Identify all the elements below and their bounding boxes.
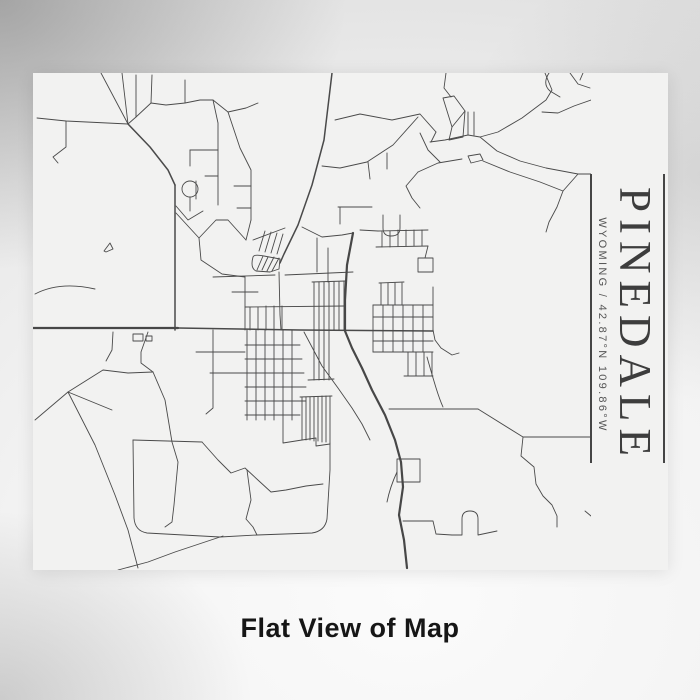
road — [35, 286, 95, 294]
road — [580, 73, 583, 80]
title-rule-right — [663, 174, 665, 463]
road — [433, 330, 459, 355]
road — [418, 159, 462, 172]
title-rule-left — [590, 174, 592, 463]
road — [176, 213, 246, 240]
image-caption: Flat View of Map — [0, 613, 700, 644]
road — [68, 392, 138, 568]
road — [444, 73, 451, 97]
road — [478, 409, 523, 437]
road — [133, 440, 202, 442]
road — [546, 73, 560, 97]
road — [122, 73, 128, 124]
road — [178, 328, 433, 331]
road — [427, 357, 443, 407]
road — [35, 370, 153, 420]
street-map-graphic — [33, 73, 668, 570]
road — [259, 231, 265, 251]
road — [521, 437, 557, 527]
road — [443, 96, 465, 127]
road — [376, 246, 428, 247]
road — [257, 256, 263, 270]
road — [245, 306, 345, 307]
road — [53, 121, 66, 163]
road — [420, 133, 440, 162]
road — [101, 73, 128, 124]
road — [483, 161, 563, 191]
road — [68, 392, 112, 410]
map-poster: PINEDALE WYOMING / 42.87°N 109.86°W — [33, 73, 668, 570]
road — [546, 174, 578, 232]
road — [379, 282, 404, 283]
road — [360, 230, 378, 231]
road — [542, 100, 591, 113]
road — [418, 258, 433, 272]
road — [133, 440, 330, 537]
road — [302, 227, 353, 237]
road — [452, 511, 497, 535]
road — [271, 233, 277, 253]
road — [136, 100, 258, 117]
photo-background: PINEDALE WYOMING / 42.87°N 109.86°W Flat… — [0, 0, 700, 700]
road — [151, 75, 152, 103]
title-block: PINEDALE WYOMING / 42.87°N 109.86°W — [594, 175, 658, 475]
road — [106, 332, 113, 361]
road — [387, 472, 397, 502]
road — [133, 334, 143, 341]
road — [406, 172, 420, 208]
road — [202, 442, 323, 492]
road — [300, 396, 332, 397]
roads-minor — [35, 73, 591, 570]
roads-medium — [128, 73, 433, 331]
road — [283, 330, 302, 443]
road — [146, 336, 152, 341]
road — [383, 215, 400, 236]
road — [104, 243, 113, 252]
road — [199, 238, 245, 277]
road — [480, 137, 591, 174]
street-network — [33, 73, 591, 570]
road — [585, 511, 591, 516]
road — [480, 73, 552, 137]
road — [246, 220, 251, 240]
road — [206, 330, 213, 414]
road — [279, 272, 281, 330]
road — [246, 470, 257, 535]
road — [285, 272, 353, 275]
road — [425, 246, 428, 258]
road — [37, 118, 128, 124]
poster-subtitle: WYOMING / 42.87°N 109.86°W — [595, 175, 608, 475]
road — [403, 521, 452, 535]
road — [345, 233, 407, 568]
poster-title: PINEDALE — [612, 175, 658, 475]
road — [322, 117, 418, 168]
road — [128, 75, 136, 124]
road — [368, 162, 370, 179]
road — [213, 100, 218, 205]
road — [570, 73, 590, 88]
road — [431, 132, 436, 142]
road — [468, 154, 483, 163]
road — [378, 230, 428, 231]
road — [153, 372, 178, 527]
road — [280, 73, 332, 263]
road — [228, 112, 251, 220]
road — [128, 124, 175, 185]
road — [335, 114, 436, 132]
road — [308, 379, 334, 380]
road — [262, 257, 268, 270]
road — [277, 234, 283, 254]
